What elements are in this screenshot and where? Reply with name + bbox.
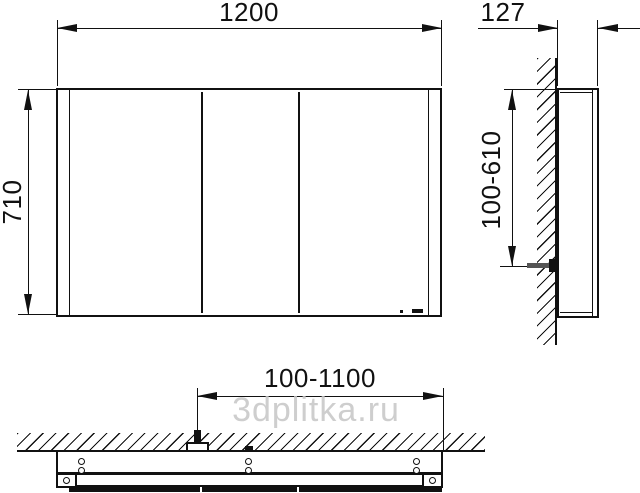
extension-line xyxy=(500,266,530,267)
site-watermark: 3dplitka.ru xyxy=(156,390,476,434)
arrowhead-down-icon xyxy=(24,294,32,314)
side-depth-dim-label: 127 xyxy=(458,0,548,26)
front-view-cabinet-outline xyxy=(56,88,442,317)
mirror-edge-gap xyxy=(297,487,299,492)
arrowhead-down-icon xyxy=(508,246,516,266)
front-door-divider-2 xyxy=(298,92,300,313)
front-left-panel-line xyxy=(69,90,70,315)
dimension-line-mount-height xyxy=(512,90,513,266)
front-right-panel-line xyxy=(428,90,429,315)
wall-anchor-plate xyxy=(186,442,209,452)
arrowhead-right-icon xyxy=(422,24,442,32)
mounting-screw-bracket xyxy=(549,259,558,272)
side-mount-range-dim-label: 100-610 xyxy=(478,122,504,238)
screw-hole xyxy=(78,458,85,465)
hinge-hole-right xyxy=(429,477,436,484)
arrowhead-left-icon xyxy=(598,24,618,32)
arrowhead-left-icon xyxy=(57,24,77,32)
side-bottom-shelf-line xyxy=(560,312,592,313)
dimension-line-width xyxy=(57,28,442,29)
brand-logo-mark xyxy=(412,309,423,313)
screw-hole xyxy=(413,458,420,465)
dimension-line-height xyxy=(28,90,29,314)
arrowhead-up-icon xyxy=(24,90,32,110)
extension-line xyxy=(18,314,56,315)
mounting-screw-shank xyxy=(527,263,551,268)
front-width-dim-label: 1200 xyxy=(189,0,309,26)
arrowhead-up-icon xyxy=(508,90,516,110)
bottom-front-frame xyxy=(75,473,425,487)
side-top-shelf-line xyxy=(560,92,592,93)
mirror-front-edge xyxy=(69,487,442,492)
wall-hatch-side xyxy=(537,58,557,345)
mirror-edge-gap xyxy=(200,487,202,492)
front-height-dim-label: 710 xyxy=(0,162,25,242)
drawing-canvas: 1200 710 127 100-610 xyxy=(0,0,640,493)
side-mirror-door-line xyxy=(592,90,593,316)
bottom-mount-range-dim-label: 100-1100 xyxy=(230,364,410,392)
screw-hole xyxy=(245,458,252,465)
center-mark xyxy=(245,446,253,452)
front-door-divider-1 xyxy=(201,92,203,313)
brand-logo-dot xyxy=(400,310,403,313)
hinge-hole-left xyxy=(63,477,70,484)
